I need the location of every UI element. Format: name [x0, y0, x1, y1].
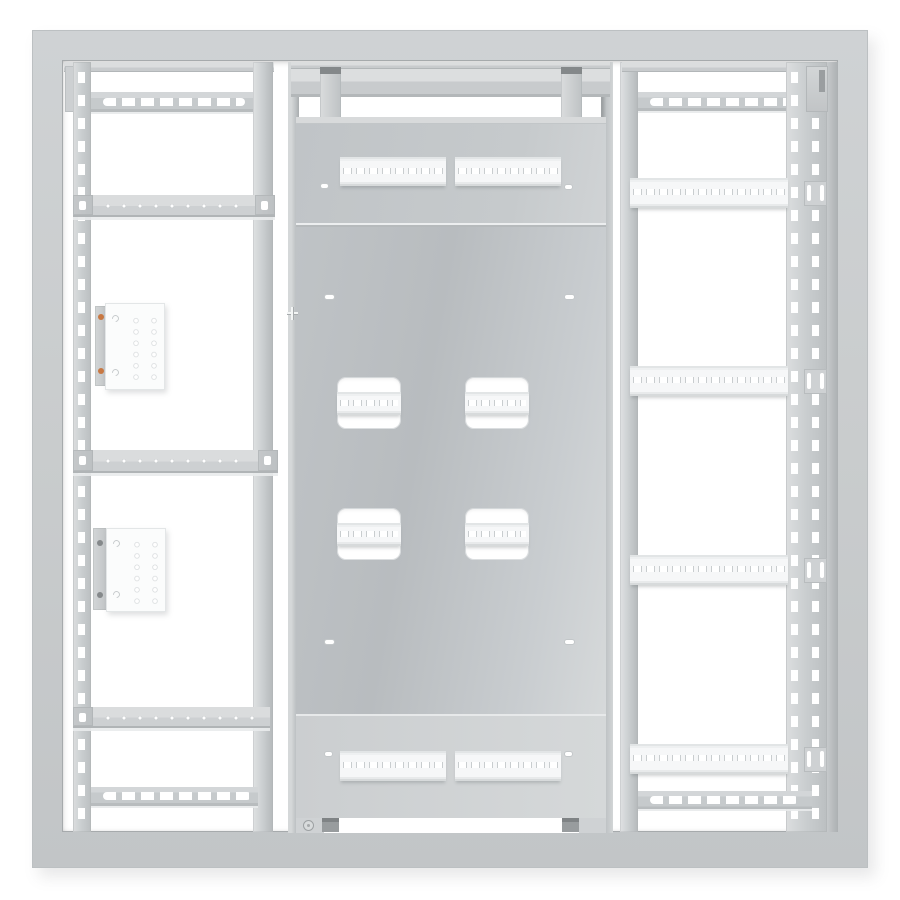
enclosure-opening — [62, 60, 838, 832]
enclosure-render — [0, 0, 900, 900]
